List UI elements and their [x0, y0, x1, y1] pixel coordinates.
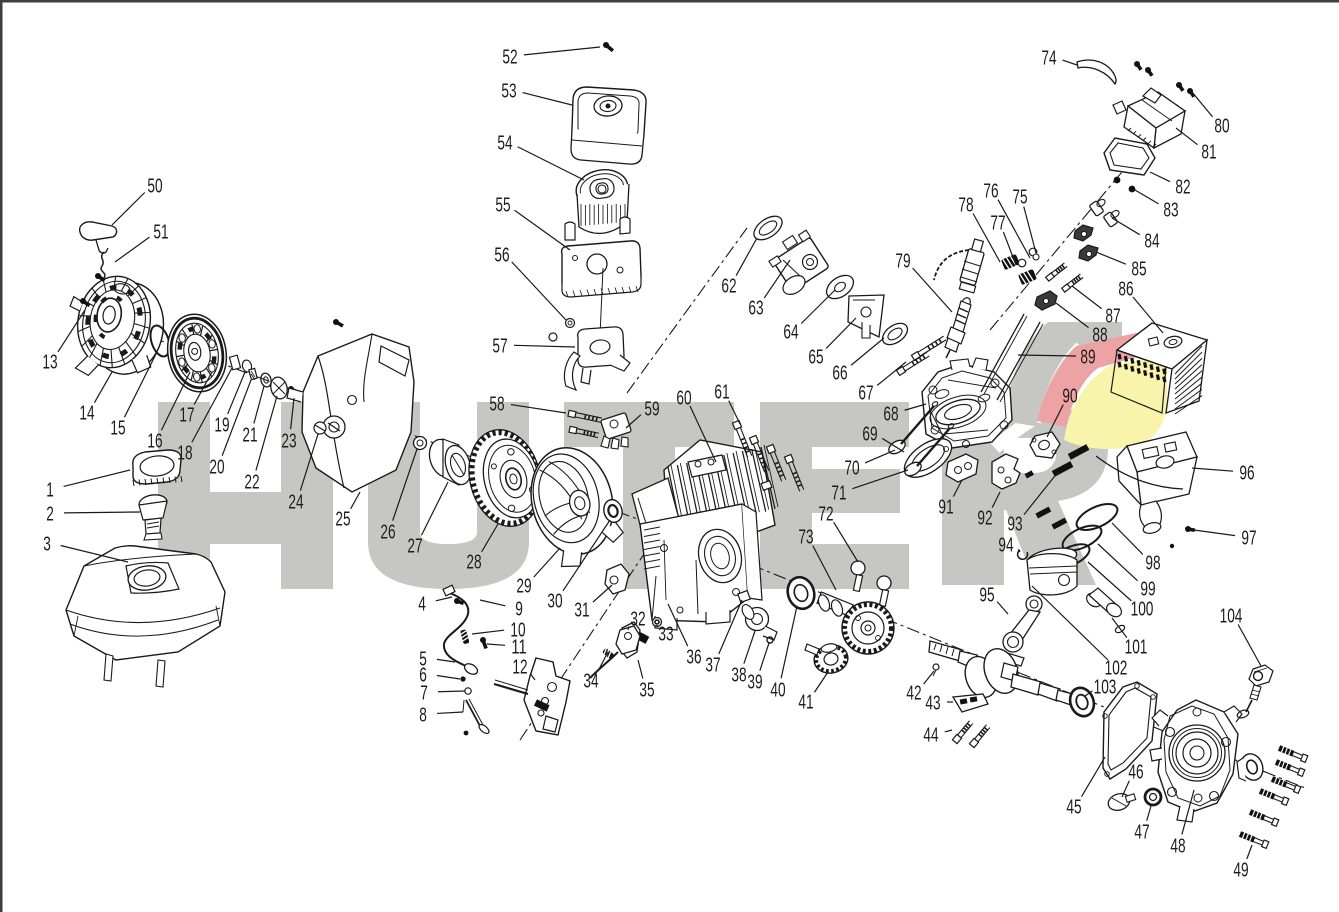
svg-text:90: 90 — [1062, 385, 1077, 408]
svg-text:7: 7 — [420, 682, 428, 705]
svg-text:3: 3 — [43, 533, 51, 556]
svg-text:35: 35 — [639, 679, 654, 702]
svg-text:62: 62 — [721, 275, 736, 298]
svg-text:55: 55 — [495, 194, 510, 217]
svg-text:71: 71 — [831, 482, 846, 505]
svg-text:32: 32 — [630, 608, 645, 631]
svg-text:66: 66 — [832, 362, 847, 385]
svg-text:2: 2 — [46, 503, 54, 526]
svg-text:91: 91 — [938, 496, 953, 519]
svg-text:26: 26 — [380, 521, 395, 544]
svg-text:101: 101 — [1125, 636, 1148, 659]
svg-text:103: 103 — [1094, 676, 1117, 699]
svg-text:70: 70 — [844, 457, 859, 480]
svg-text:78: 78 — [958, 194, 973, 217]
svg-text:98: 98 — [1145, 552, 1160, 575]
svg-text:42: 42 — [906, 682, 921, 705]
svg-text:52: 52 — [502, 46, 517, 69]
svg-text:75: 75 — [1012, 186, 1027, 209]
svg-text:18: 18 — [177, 442, 192, 465]
svg-text:95: 95 — [979, 584, 994, 607]
svg-text:89: 89 — [1080, 346, 1095, 369]
svg-text:72: 72 — [818, 503, 833, 526]
svg-text:92: 92 — [977, 507, 992, 530]
svg-text:25: 25 — [335, 508, 350, 531]
svg-text:67: 67 — [858, 382, 873, 405]
svg-text:73: 73 — [798, 526, 813, 549]
svg-text:27: 27 — [407, 535, 422, 558]
svg-text:76: 76 — [983, 180, 998, 203]
svg-text:61: 61 — [714, 381, 729, 404]
svg-text:100: 100 — [1131, 598, 1154, 621]
svg-text:56: 56 — [494, 244, 509, 267]
svg-text:97: 97 — [1241, 527, 1256, 550]
svg-text:31: 31 — [574, 599, 589, 622]
svg-text:104: 104 — [1220, 605, 1243, 628]
svg-text:57: 57 — [492, 335, 507, 358]
svg-text:12: 12 — [512, 656, 527, 679]
svg-text:14: 14 — [79, 402, 94, 425]
svg-text:93: 93 — [1007, 513, 1022, 536]
svg-text:82: 82 — [1175, 176, 1190, 199]
svg-text:46: 46 — [1128, 761, 1143, 784]
svg-text:54: 54 — [497, 132, 512, 155]
svg-text:24: 24 — [288, 491, 303, 514]
svg-text:83: 83 — [1163, 199, 1178, 222]
svg-text:43: 43 — [925, 692, 940, 715]
svg-text:21: 21 — [242, 424, 257, 447]
svg-text:68: 68 — [883, 403, 898, 426]
svg-text:39: 39 — [747, 671, 762, 694]
svg-text:51: 51 — [153, 221, 168, 244]
svg-text:20: 20 — [209, 456, 224, 479]
svg-text:29: 29 — [516, 575, 531, 598]
svg-text:28: 28 — [466, 551, 481, 574]
svg-text:49: 49 — [1233, 859, 1248, 882]
svg-text:22: 22 — [244, 471, 259, 494]
svg-text:63: 63 — [748, 297, 763, 320]
svg-text:79: 79 — [895, 250, 910, 273]
svg-text:38: 38 — [731, 664, 746, 687]
svg-text:53: 53 — [501, 80, 516, 103]
svg-text:40: 40 — [770, 679, 785, 702]
svg-text:44: 44 — [923, 724, 938, 747]
svg-text:33: 33 — [658, 623, 673, 646]
svg-text:84: 84 — [1144, 230, 1159, 253]
svg-text:69: 69 — [862, 423, 877, 446]
svg-text:81: 81 — [1201, 141, 1216, 164]
svg-text:85: 85 — [1131, 258, 1146, 281]
svg-text:50: 50 — [147, 175, 162, 198]
svg-text:36: 36 — [686, 646, 701, 669]
svg-text:77: 77 — [990, 212, 1005, 235]
svg-text:65: 65 — [808, 346, 823, 369]
svg-text:30: 30 — [547, 590, 562, 613]
svg-text:64: 64 — [783, 321, 798, 344]
svg-text:9: 9 — [515, 598, 523, 621]
svg-text:80: 80 — [1214, 115, 1229, 138]
svg-text:41: 41 — [798, 691, 813, 714]
svg-text:17: 17 — [179, 404, 194, 427]
svg-text:58: 58 — [489, 393, 504, 416]
svg-text:19: 19 — [214, 414, 229, 437]
svg-text:4: 4 — [418, 593, 426, 616]
svg-text:74: 74 — [1041, 47, 1056, 70]
svg-text:96: 96 — [1239, 462, 1254, 485]
svg-text:1: 1 — [46, 479, 54, 502]
svg-text:13: 13 — [42, 351, 57, 374]
svg-text:86: 86 — [1118, 278, 1133, 301]
svg-text:87: 87 — [1105, 305, 1120, 328]
svg-text:59: 59 — [644, 398, 659, 421]
svg-text:88: 88 — [1092, 324, 1107, 347]
svg-text:37: 37 — [705, 654, 720, 677]
svg-text:16: 16 — [147, 430, 162, 453]
svg-text:60: 60 — [676, 387, 691, 410]
svg-text:45: 45 — [1066, 796, 1081, 819]
svg-text:47: 47 — [1134, 821, 1149, 844]
svg-text:94: 94 — [998, 534, 1013, 557]
svg-text:8: 8 — [419, 704, 427, 727]
svg-text:23: 23 — [281, 430, 296, 453]
svg-text:15: 15 — [110, 417, 125, 440]
svg-text:48: 48 — [1170, 835, 1185, 858]
svg-text:34: 34 — [583, 670, 598, 693]
